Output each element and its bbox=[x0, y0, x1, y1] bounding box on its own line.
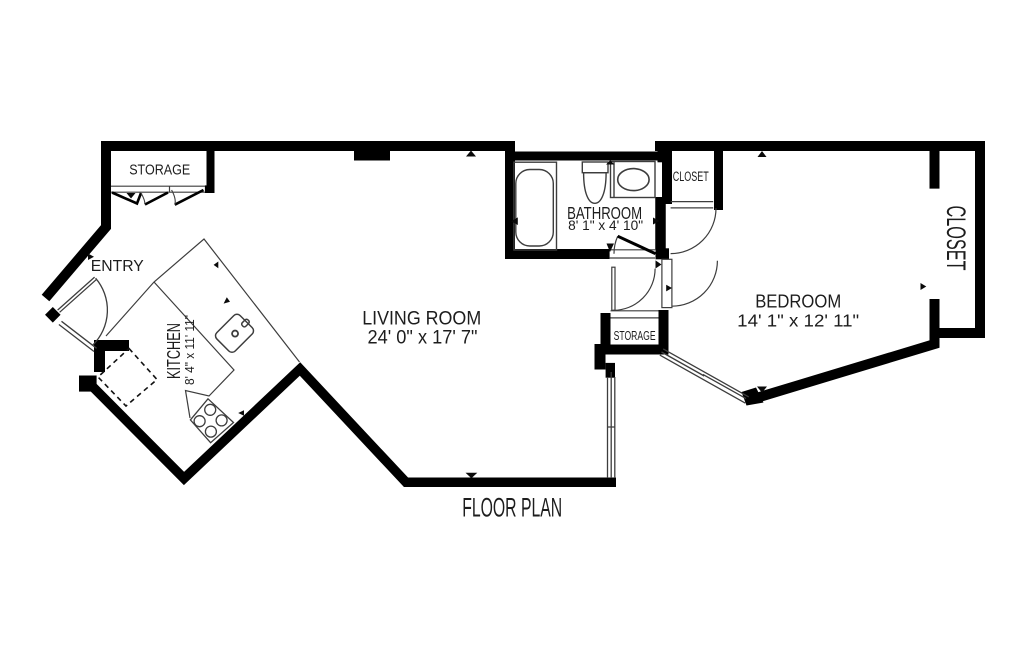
svg-text:24' 0" x 17' 7": 24' 0" x 17' 7" bbox=[368, 328, 478, 349]
svg-text:CLOSET: CLOSET bbox=[673, 169, 709, 185]
svg-text:CLOSET: CLOSET bbox=[941, 206, 971, 271]
svg-text:FLOOR PLAN: FLOOR PLAN bbox=[462, 492, 562, 522]
svg-text:STORAGE: STORAGE bbox=[614, 329, 656, 343]
svg-text:8' 1" x 4' 10": 8' 1" x 4' 10" bbox=[568, 217, 643, 233]
svg-text:KITCHEN: KITCHEN bbox=[164, 323, 184, 379]
svg-text:BEDROOM: BEDROOM bbox=[755, 291, 841, 312]
svg-text:STORAGE: STORAGE bbox=[129, 163, 190, 179]
svg-text:LIVING ROOM: LIVING ROOM bbox=[362, 307, 481, 329]
svg-text:8' 4" x 11' 11": 8' 4" x 11' 11" bbox=[182, 315, 197, 385]
svg-text:ENTRY: ENTRY bbox=[91, 258, 144, 275]
svg-text:14' 1" x 12' 11": 14' 1" x 12' 11" bbox=[737, 311, 859, 331]
